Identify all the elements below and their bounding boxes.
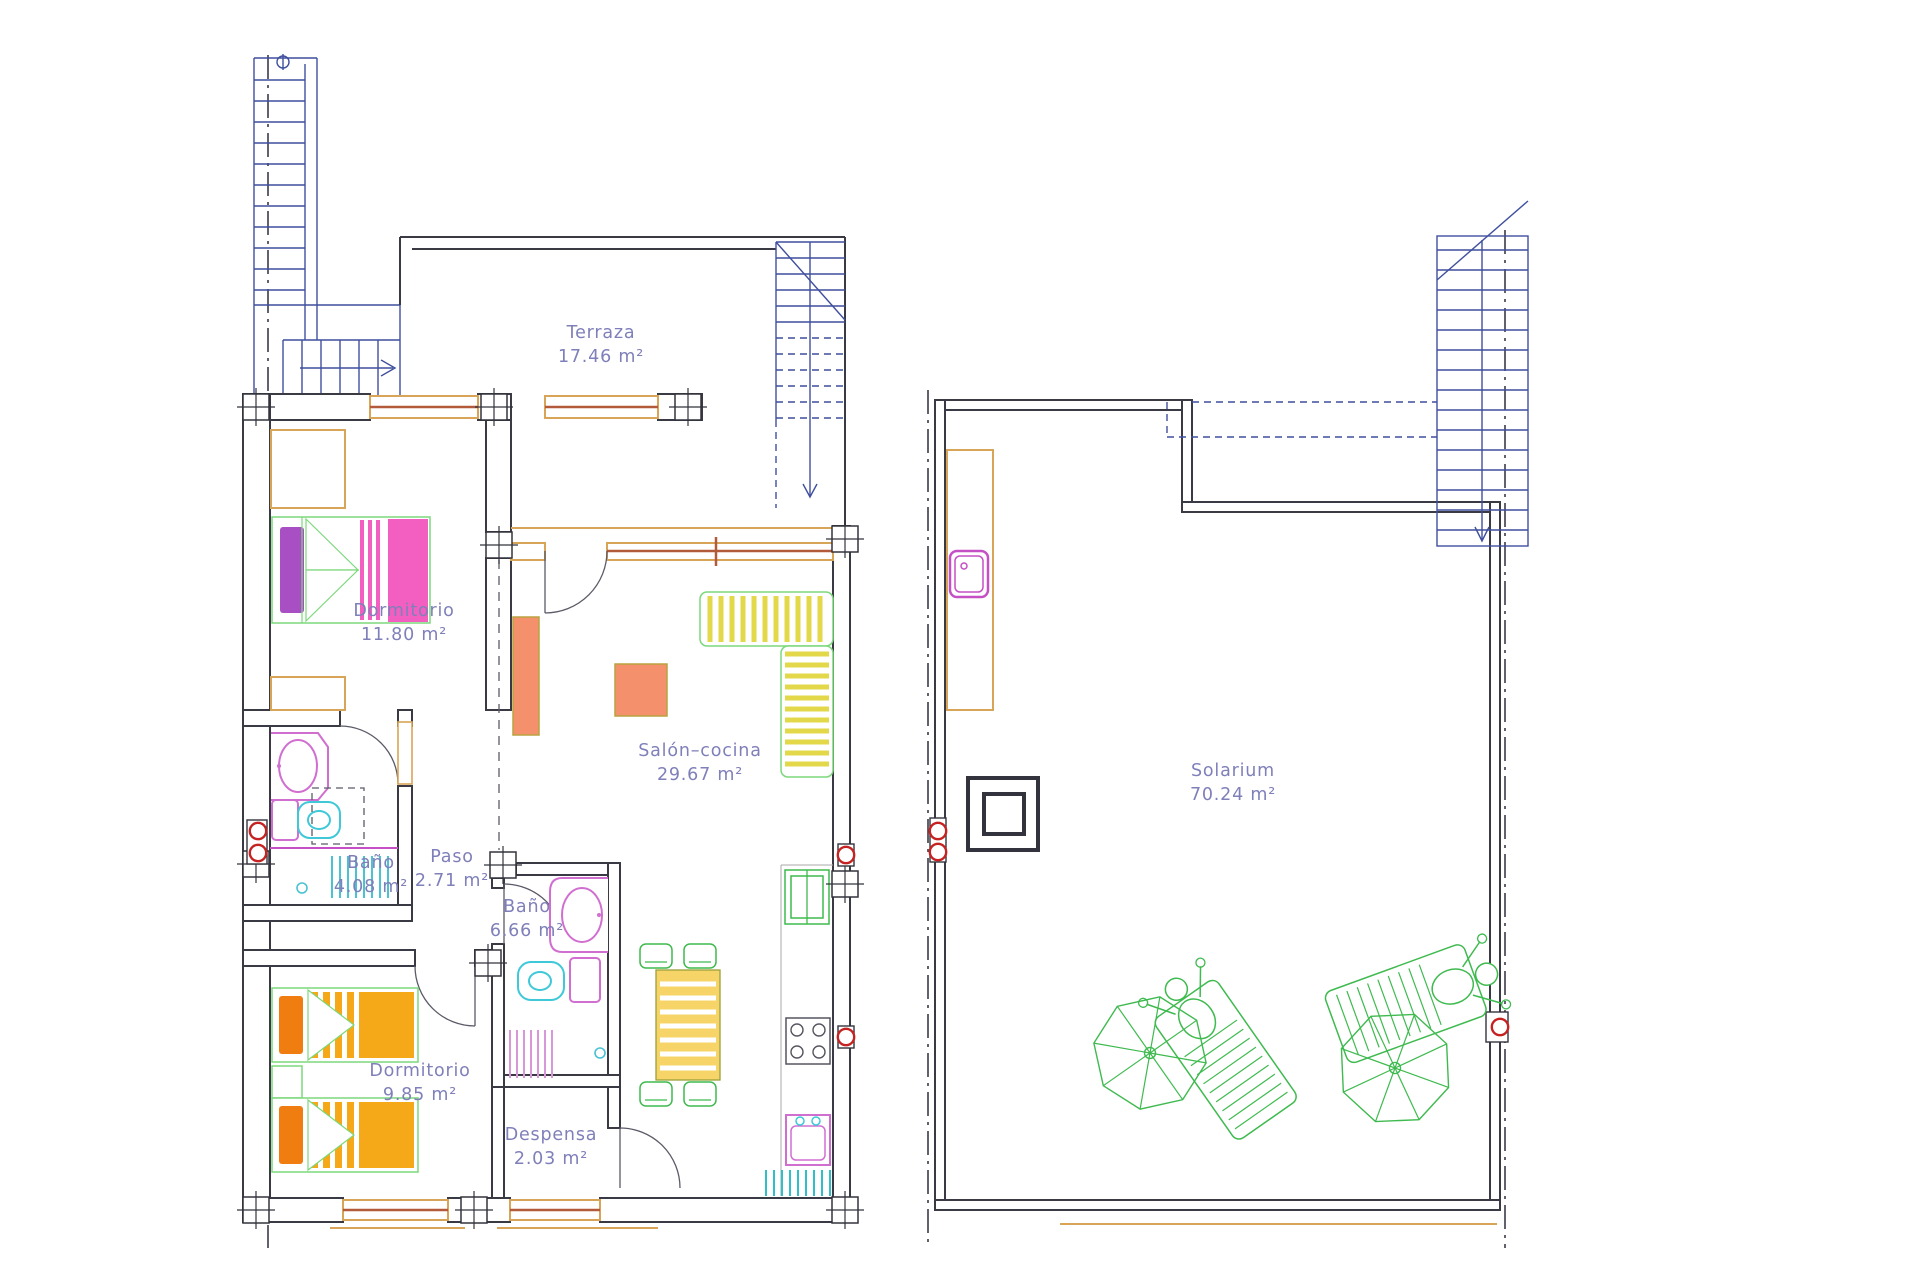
room-label-bano1: Baño xyxy=(347,853,395,873)
sink-icon xyxy=(279,740,317,792)
tv-sideboard xyxy=(513,617,539,735)
window-bedroom1-top xyxy=(370,396,478,418)
column-marker xyxy=(237,1191,275,1229)
counter-hatch xyxy=(766,1170,830,1196)
wardrobe xyxy=(271,430,345,508)
column-marker xyxy=(826,865,864,903)
room-area-solarium: 70.24 m² xyxy=(1190,785,1276,805)
chimney xyxy=(968,778,1038,850)
room-label-dormitorio2: Dormitorio xyxy=(369,1061,470,1081)
column-marker xyxy=(480,526,518,564)
room-labels-right: Solarium 70.24 m² xyxy=(1190,761,1276,805)
bath1-fixtures xyxy=(270,733,398,898)
stove-icon xyxy=(786,1018,830,1064)
sun-loungers xyxy=(1084,933,1512,1143)
single-bed-2 xyxy=(272,1098,418,1172)
room-area-paso: 2.71 m² xyxy=(415,871,489,891)
column-marker xyxy=(237,388,275,426)
bedroom1-furniture xyxy=(271,430,430,710)
solarium-counter xyxy=(947,450,993,710)
lounger-icon xyxy=(1323,933,1512,1066)
sink-icon xyxy=(562,888,602,942)
room-area-dormitorio1: 11.80 m² xyxy=(361,625,447,645)
dining-set xyxy=(640,944,720,1106)
column-marker xyxy=(826,1191,864,1229)
coffee-table xyxy=(615,664,667,716)
column-marker xyxy=(455,1191,493,1229)
room-area-terraza: 17.46 m² xyxy=(558,347,644,367)
column-marker xyxy=(469,944,507,982)
shower-floor xyxy=(510,1030,552,1078)
terrace-door-arc xyxy=(545,551,607,613)
left-plan: Terraza 17.46 m² Dormitorio 11.80 m² Sal… xyxy=(237,54,864,1248)
column-marker xyxy=(484,846,522,884)
nightstand xyxy=(272,1066,302,1098)
room-label-bano2: Baño xyxy=(503,897,551,917)
kitchen-sink-icon xyxy=(786,1115,830,1165)
right-plan: Solarium 70.24 m² xyxy=(928,201,1528,1248)
room-area-salon: 29.67 m² xyxy=(657,765,743,785)
column-marker xyxy=(826,520,864,558)
chair-icon xyxy=(640,944,672,968)
stair-top-left xyxy=(254,54,400,397)
floor-plan-svg: Terraza 17.46 m² Dormitorio 11.80 m² Sal… xyxy=(0,0,1920,1280)
shower-drain xyxy=(595,1048,605,1058)
kitchen-run xyxy=(766,865,833,1196)
room-area-despensa: 2.03 m² xyxy=(514,1149,588,1169)
room-area-dormitorio2: 9.85 m² xyxy=(383,1085,457,1105)
room-area-bano1: 4.08 m² xyxy=(334,877,408,897)
room-label-dormitorio1: Dormitorio xyxy=(353,601,454,621)
lounger-icon xyxy=(1137,956,1301,1143)
bath1-door-leaf xyxy=(398,722,412,784)
window-terrace-parapet xyxy=(545,396,658,418)
bed-pillow xyxy=(280,527,304,613)
solarium-stair xyxy=(1167,201,1528,546)
bedroom2-door-arc xyxy=(415,966,475,1026)
room-label-terraza: Terraza xyxy=(566,323,636,343)
stair-landing-dashed xyxy=(1167,402,1437,437)
toilet-tank xyxy=(570,958,600,1002)
toilet-tank xyxy=(272,800,298,840)
column-marker xyxy=(669,388,707,426)
bath1-door-arc xyxy=(340,726,398,784)
room-label-paso: Paso xyxy=(430,847,474,867)
floor-plan-canvas: Terraza 17.46 m² Dormitorio 11.80 m² Sal… xyxy=(0,0,1920,1280)
chair-icon xyxy=(640,1082,672,1106)
despensa-door-arc xyxy=(620,1128,680,1188)
single-bed-1 xyxy=(272,988,418,1062)
chair-icon xyxy=(684,1082,716,1106)
room-label-solarium: Solarium xyxy=(1191,761,1275,781)
window-bedroom2-bottom xyxy=(330,1200,465,1228)
room-area-bano2: 6.66 m² xyxy=(490,921,564,941)
chair-icon xyxy=(684,944,716,968)
wardrobe-low xyxy=(271,677,345,710)
column-marker xyxy=(475,388,513,426)
shower-drain xyxy=(297,883,307,893)
room-label-despensa: Despensa xyxy=(505,1125,598,1145)
terrace-parapet xyxy=(400,237,845,526)
terrace-stair xyxy=(776,242,845,508)
room-label-salon: Salón–cocina xyxy=(638,741,761,761)
